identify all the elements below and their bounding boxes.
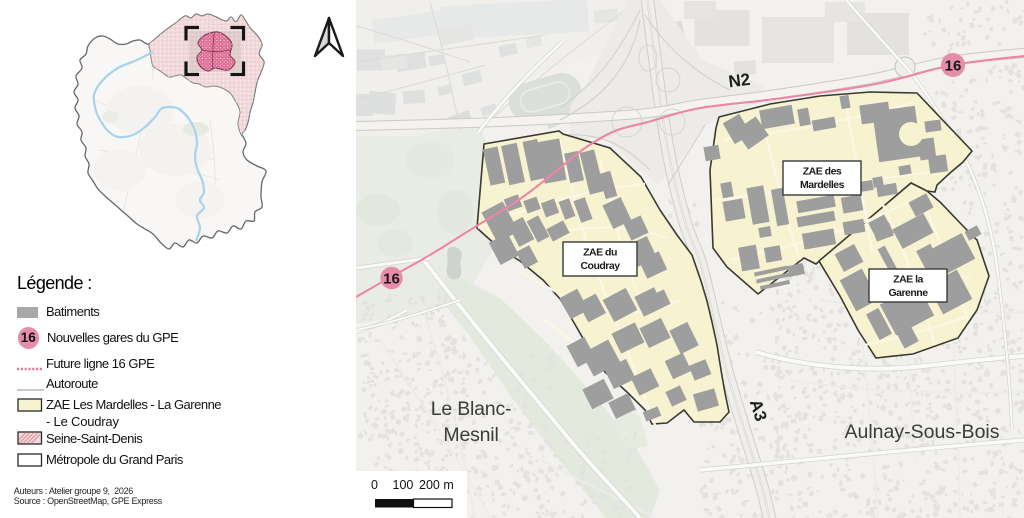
- svg-text:Aulnay-Sous-Bois: Aulnay-Sous-Bois: [845, 421, 1000, 443]
- svg-text:16: 16: [383, 271, 400, 288]
- svg-text:16: 16: [945, 58, 962, 75]
- svg-text:ZAE des: ZAE des: [803, 166, 842, 178]
- svg-text:Mesnil: Mesnil: [443, 424, 498, 446]
- svg-text:Le Blanc-: Le Blanc-: [431, 398, 512, 420]
- svg-text:100: 100: [393, 478, 414, 492]
- svg-text:N2: N2: [727, 70, 751, 92]
- svg-text:Mardelles: Mardelles: [800, 179, 845, 191]
- svg-text:ZAE la: ZAE la: [893, 274, 923, 286]
- svg-text:0: 0: [371, 478, 378, 492]
- svg-text:200 m: 200 m: [419, 478, 454, 492]
- svg-text:Coudray: Coudray: [580, 260, 620, 272]
- svg-text:ZAE du: ZAE du: [583, 247, 617, 259]
- svg-text:Garenne: Garenne: [888, 287, 928, 299]
